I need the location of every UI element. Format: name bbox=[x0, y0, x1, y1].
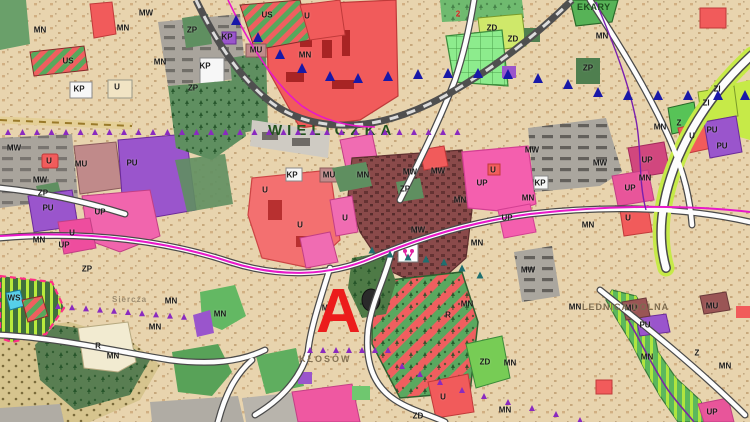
map-graphics: WIELICZKA bbox=[0, 0, 750, 422]
zoning-map-canvas[interactable]: WIELICZKA bbox=[0, 0, 750, 422]
annotation-letter-a: A bbox=[316, 284, 361, 340]
